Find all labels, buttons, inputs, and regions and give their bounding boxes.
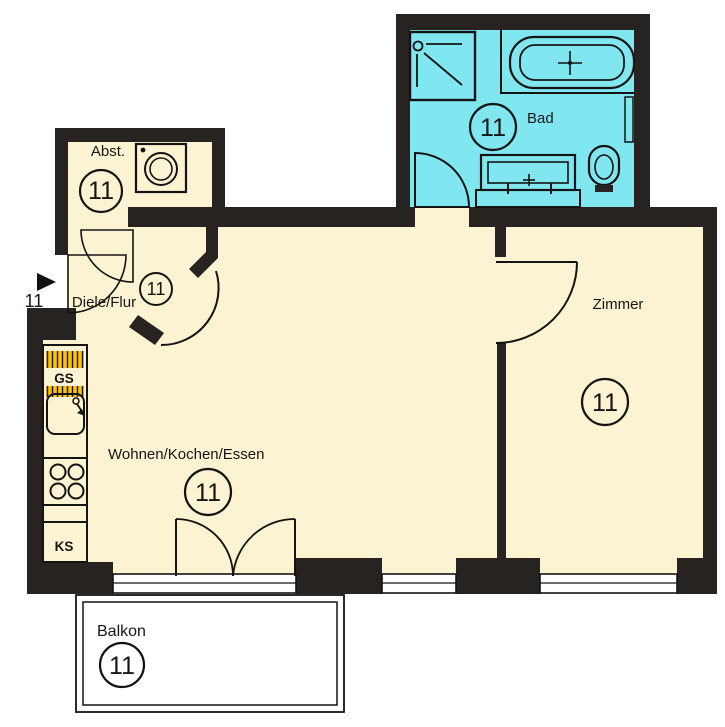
svg-text:11: 11 (480, 114, 506, 142)
entrance-arrow-icon (37, 273, 56, 291)
window-zimmer (540, 574, 677, 593)
wall-partition-upper (495, 227, 506, 257)
wall-pier-1 (296, 558, 382, 594)
wall-abst-left (55, 128, 68, 255)
svg-text:11: 11 (147, 279, 166, 299)
svg-text:11: 11 (109, 652, 135, 680)
entrance-unit-number: 11 (25, 291, 44, 311)
floor-plan-canvas: GS KS 11 11 (0, 0, 725, 727)
wall-bath-right (634, 14, 650, 227)
zimmer-label: Zimmer (593, 296, 644, 313)
wall-partition-lower (497, 343, 506, 558)
wall-right (703, 207, 717, 594)
dishwasher-label: GS (54, 371, 74, 386)
diele-label: Diele/Flur (72, 294, 136, 311)
balkon-label: Balkon (97, 623, 146, 640)
svg-text:11: 11 (592, 389, 618, 417)
fridge-label: KS (55, 539, 74, 554)
wall-pier-2 (456, 558, 540, 594)
wall-abst-right (212, 142, 225, 207)
svg-text:11: 11 (195, 479, 221, 507)
entrance-marker: 11 (25, 273, 56, 311)
room-balkon-label: Balkon 11 (97, 623, 146, 687)
wall-bath-top (396, 14, 650, 30)
wall-bottom-left (27, 562, 113, 594)
wohnen-label: Wohnen/Kochen/Essen (108, 446, 265, 463)
wall-band-left (128, 207, 415, 227)
wall-abst-top (55, 128, 225, 142)
window-living-balcony (113, 574, 296, 593)
bath-door-opening (415, 207, 469, 227)
floor-plan: GS KS 11 11 (0, 0, 725, 727)
windows (113, 574, 677, 593)
window-living-right (382, 574, 456, 593)
abst-label: Abst. (91, 143, 125, 160)
wall-band-right (469, 207, 717, 227)
wall-bath-left (396, 14, 410, 227)
hall-living-floor (43, 227, 495, 594)
svg-text:11: 11 (88, 177, 114, 205)
wall-left (27, 308, 43, 594)
bad-label: Bad (527, 110, 554, 127)
bath-floor (410, 30, 634, 207)
